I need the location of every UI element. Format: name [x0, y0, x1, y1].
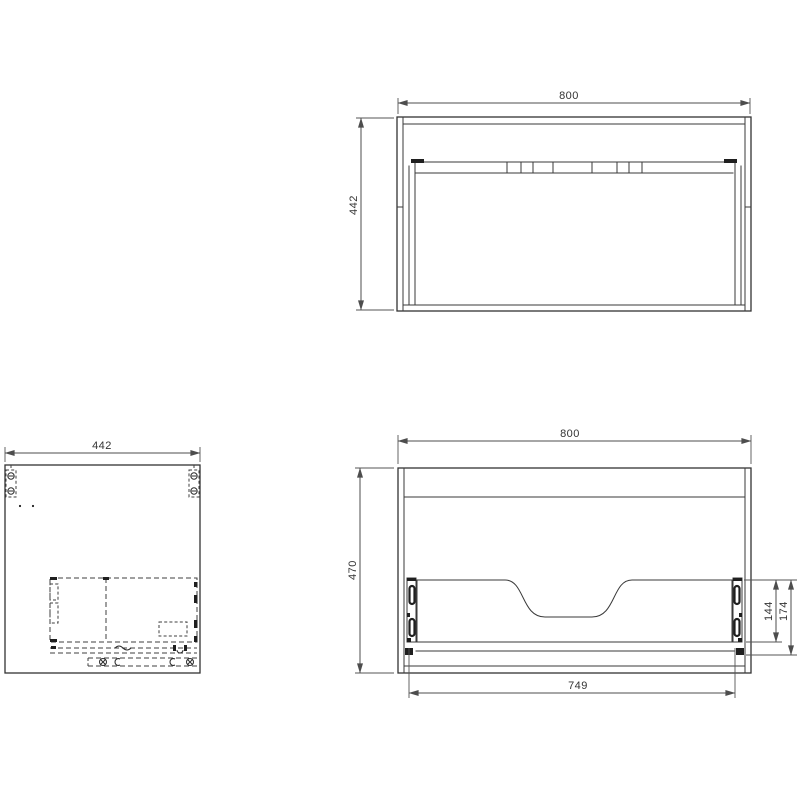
- hanging-rail: [411, 159, 737, 173]
- clip-c-icon: [170, 659, 175, 666]
- top-plan-view: 800 442: [348, 90, 751, 311]
- front-view-slide-height-label: 144: [763, 601, 775, 621]
- front-view-inner-width-label: 749: [568, 680, 588, 692]
- dowel-dots: [19, 505, 34, 507]
- technical-drawing: 800 442: [0, 0, 800, 800]
- front-view-dim-slide: 144 174: [744, 580, 797, 655]
- drawer-back-panel: [416, 580, 734, 651]
- side-panel-view: 442: [5, 440, 200, 673]
- front-view-back-offset-label: 174: [778, 601, 790, 621]
- clip-symbol: [173, 645, 187, 653]
- clip-c-icon: [115, 659, 120, 666]
- screw-cross-icon: [187, 659, 194, 666]
- drawer-slide-left: [405, 578, 416, 655]
- front-view-width-label: 800: [560, 428, 580, 440]
- top-view-dim-width: 800: [398, 90, 750, 114]
- side-view-width-label: 442: [92, 440, 112, 452]
- hidden-drawer-slide: [50, 577, 198, 642]
- rail-end-cap-left: [411, 159, 424, 163]
- front-view-dim-width: 800: [398, 428, 751, 464]
- top-view-dim-depth: 442: [348, 118, 394, 310]
- front-view-dim-height: 470: [347, 468, 394, 673]
- siphon-cutout-notch: [417, 580, 732, 617]
- cam-lock-holes-left: [6, 465, 16, 497]
- hidden-drawer-bottom: [50, 645, 197, 653]
- front-open-view: 800 470 749 144 174: [347, 428, 797, 698]
- bottom-hardware-band: [88, 658, 197, 666]
- hidden-bracket-outline: [159, 622, 187, 636]
- top-view-width-label: 800: [559, 90, 579, 102]
- top-view-depth-label: 442: [348, 195, 360, 215]
- screw-cross-icon: [100, 659, 107, 666]
- rail-slot-ticks: [507, 162, 642, 173]
- drawer-slide-right: [733, 578, 744, 655]
- cam-lock-holes-right: [189, 465, 199, 497]
- drawing-page: 800 442: [0, 0, 800, 800]
- rail-end-cap-right: [724, 159, 737, 163]
- slide-hook: [736, 648, 744, 655]
- side-view-dim-width: 442: [5, 440, 200, 462]
- front-view-height-label: 470: [347, 560, 359, 580]
